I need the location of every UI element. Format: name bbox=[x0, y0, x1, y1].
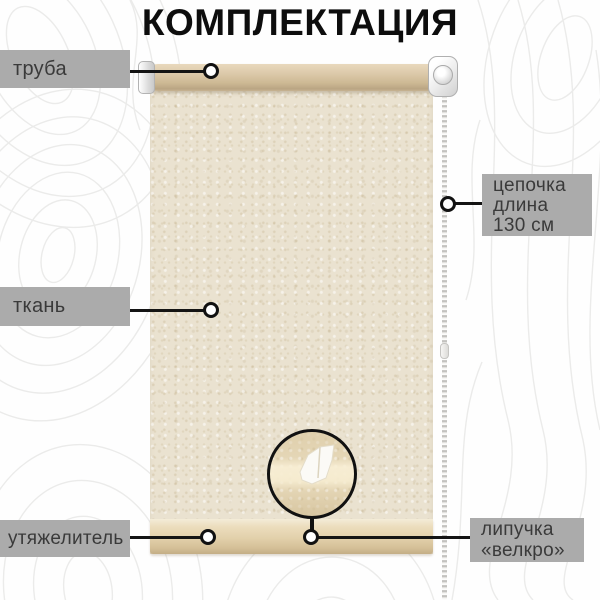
callout-line-tube bbox=[130, 70, 211, 73]
left-bracket bbox=[138, 61, 155, 94]
label-tube: труба bbox=[0, 50, 130, 88]
callout-marker-chain bbox=[440, 196, 456, 212]
label-chain-line3: 130 см bbox=[493, 216, 592, 236]
label-velcro-line2: «велкро» bbox=[481, 540, 584, 561]
velcro-magnifier-circle bbox=[267, 429, 357, 519]
label-chain-line2: длина bbox=[493, 196, 592, 216]
label-fabric-text: ткань bbox=[13, 295, 65, 317]
callout-marker-weight bbox=[200, 529, 216, 545]
product-infographic: КОМПЛЕКТАЦИЯ труба ткань утяжелитель цеп… bbox=[0, 0, 600, 600]
blind-tube bbox=[145, 64, 455, 91]
velcro-piece-icon bbox=[270, 432, 354, 516]
label-velcro-line1: липучка bbox=[481, 519, 584, 540]
page-title: КОМПЛЕКТАЦИЯ bbox=[0, 2, 600, 44]
callout-marker-fabric bbox=[203, 302, 219, 318]
label-velcro: липучка «велкро» bbox=[470, 518, 584, 562]
callout-line-weight bbox=[130, 536, 208, 539]
label-weight-text: утяжелитель bbox=[8, 528, 124, 549]
label-tube-text: труба bbox=[13, 58, 67, 80]
callout-marker-velcro bbox=[303, 529, 319, 545]
label-chain-line1: цепочка bbox=[493, 176, 592, 196]
label-fabric: ткань bbox=[0, 287, 130, 326]
label-weight: утяжелитель bbox=[0, 520, 130, 557]
callout-marker-tube bbox=[203, 63, 219, 79]
chain-control-unit bbox=[428, 56, 458, 97]
callout-line-fabric bbox=[130, 309, 211, 312]
callout-line-velcro bbox=[311, 536, 470, 539]
label-chain: цепочка длина 130 см bbox=[482, 174, 592, 236]
chain-connector bbox=[440, 343, 449, 359]
